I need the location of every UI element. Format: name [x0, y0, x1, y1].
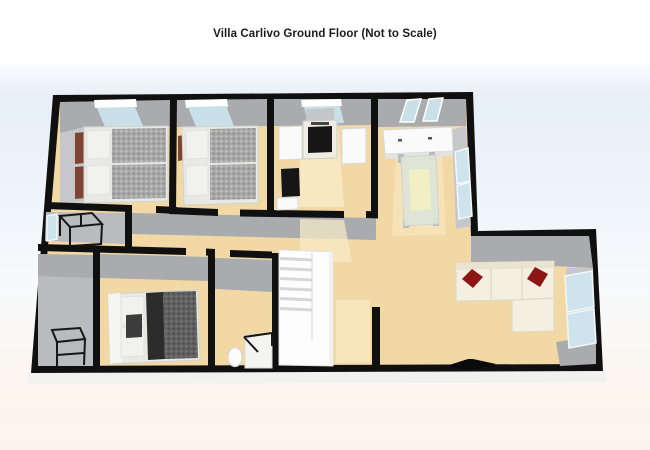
bedroom-2 — [178, 126, 258, 205]
kitchen-cabinet-left — [279, 126, 302, 160]
dining-table — [398, 152, 439, 228]
dining-side-window-2 — [457, 182, 472, 219]
sideboard — [383, 127, 453, 159]
living-room-window-1 — [565, 271, 594, 312]
floorplan-svg — [0, 0, 650, 450]
twin-beds — [84, 126, 168, 203]
bedroom-3 — [108, 290, 200, 364]
kitchen-unit-white — [277, 197, 298, 210]
kitchen-stove — [303, 120, 337, 159]
shower — [244, 333, 272, 368]
hall-wall-stub — [372, 307, 380, 370]
living-room-window-2 — [567, 309, 596, 348]
dining-side-window-1 — [455, 148, 470, 184]
toilet — [228, 348, 242, 367]
staircase — [279, 250, 333, 366]
floorplan-page: Villa Carlivo Ground Floor (Not to Scale… — [0, 0, 650, 450]
double-bed — [108, 290, 200, 364]
storage-window — [47, 214, 57, 241]
kitchen-appliance-dark — [281, 168, 300, 197]
building-ground-shadow — [27, 371, 607, 384]
bedroom-1 — [75, 126, 168, 203]
kitchen-cabinet-right — [342, 128, 366, 164]
twin-beds — [182, 126, 258, 205]
